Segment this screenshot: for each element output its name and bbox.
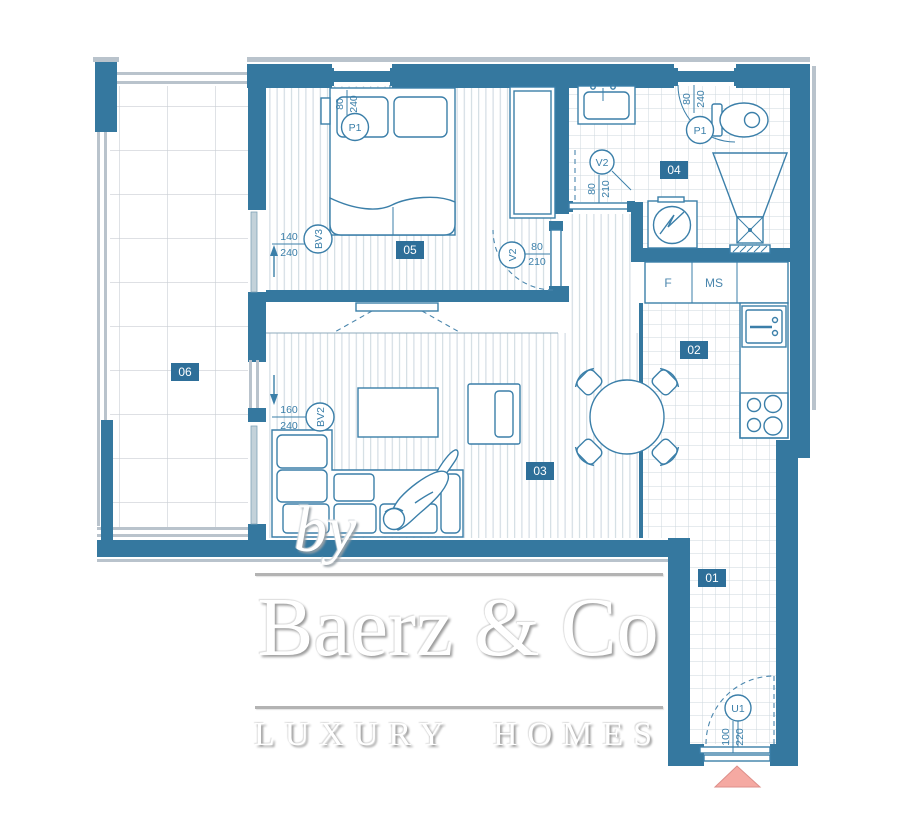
bedroom-inner-door-leaf <box>551 230 561 287</box>
room-badge-hall: 01 <box>698 569 726 587</box>
dim-value: 210 <box>528 256 546 268</box>
entrance-door-leaf-outer <box>700 747 770 753</box>
cabinet-label: MS <box>705 276 723 290</box>
dim-value: 240 <box>348 95 360 113</box>
door-label: P1 <box>349 122 362 134</box>
tv <box>333 303 461 333</box>
armchair <box>468 384 520 444</box>
floor-plan-drawing: F MS <box>0 0 914 818</box>
room-number: 03 <box>533 464 547 478</box>
dim-value: 80 <box>586 183 598 195</box>
dim-value: 80 <box>531 241 543 253</box>
dim-value: 100 <box>720 728 732 746</box>
door-label: U1 <box>731 703 745 715</box>
dim-value: 240 <box>280 247 298 259</box>
door-label: BV2 <box>315 407 327 427</box>
terrace-pillar-bottom <box>101 420 113 540</box>
balcony-door-leaf-bv2 <box>251 426 257 524</box>
room-number: 06 <box>178 365 192 379</box>
coffee-table <box>358 388 438 437</box>
terrace-pillar-top <box>95 62 117 132</box>
dim-value: 240 <box>280 420 298 432</box>
door-label: V2 <box>596 157 609 169</box>
bedroom-door-leaf <box>334 71 390 82</box>
room-badge-bathroom: 04 <box>660 161 688 179</box>
bedside-shelf <box>321 98 330 124</box>
entrance-door-leaf-inner <box>704 755 770 761</box>
room-number: 05 <box>403 243 417 257</box>
kitchen-cabinets: F MS <box>645 262 788 303</box>
bathroom-door-leaf <box>677 71 735 82</box>
room-badge-kitchen: 02 <box>680 341 708 359</box>
toilet <box>712 103 768 137</box>
room-number: 02 <box>687 343 701 357</box>
dim-value: 80 <box>681 93 693 105</box>
floor-plan-page: F MS <box>0 0 914 818</box>
door-label: P1 <box>694 125 707 137</box>
wardrobe <box>510 87 555 218</box>
dim-value: 80 <box>334 98 346 110</box>
entrance-marker <box>715 766 760 787</box>
dim-value: 160 <box>280 404 298 416</box>
dim-value: 210 <box>600 180 612 198</box>
dim-value: 220 <box>734 728 746 746</box>
door-label: V2 <box>507 248 519 261</box>
terrace-floor <box>110 86 248 527</box>
balcony-door-leaf-bv3 <box>251 212 257 292</box>
pillow <box>394 97 447 137</box>
bathroom-sink <box>578 85 635 124</box>
room-badge-living: 03 <box>526 462 554 480</box>
fridge-label: F <box>664 276 671 290</box>
door-label: BV3 <box>313 229 325 249</box>
inner-hall-floor <box>569 214 631 333</box>
dim-value: 140 <box>280 231 298 243</box>
terrace-glazing <box>249 212 259 524</box>
dining-table <box>590 380 664 454</box>
kitchen-counter <box>740 303 788 438</box>
room-number: 04 <box>667 163 681 177</box>
bathroom-inner-door-leaf <box>569 203 631 209</box>
room-number: 01 <box>705 571 719 585</box>
washing-machine <box>648 197 697 248</box>
room-badge-bedroom: 05 <box>396 241 424 259</box>
dim-value: 240 <box>695 90 707 108</box>
room-badge-terrace: 06 <box>171 363 199 381</box>
